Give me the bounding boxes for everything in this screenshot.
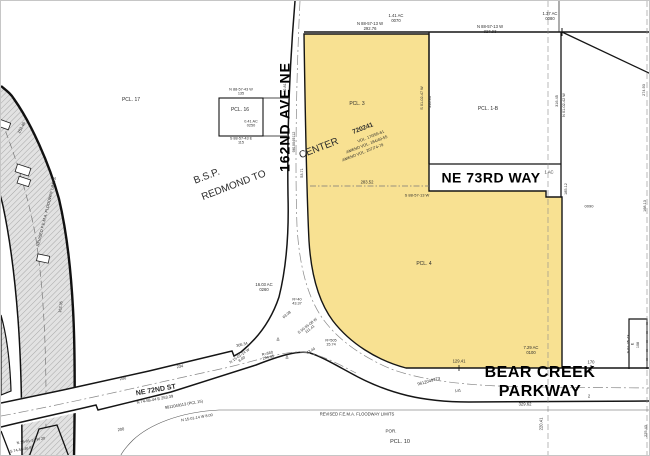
pcl16-connectors [263, 98, 288, 136]
river-band-sliver [1, 315, 11, 395]
right-edge-lot-box [629, 319, 647, 369]
river-band [1, 86, 113, 456]
highlighted-parcel[interactable] [304, 34, 562, 368]
pcl16-box [219, 98, 263, 136]
river-band-lower-edge [1, 431, 11, 456]
fema-floodway-line [120, 410, 650, 456]
diagonal-boundary [562, 32, 650, 74]
plat-map: 162ND AVE NENE 73RD WAYBEAR CREEK PARKWA… [0, 0, 650, 456]
map-geometry [1, 1, 650, 456]
